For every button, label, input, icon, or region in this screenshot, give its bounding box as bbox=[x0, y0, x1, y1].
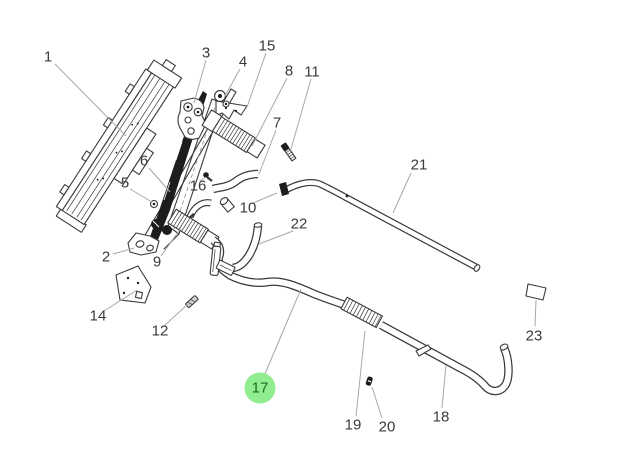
leader-line-11 bbox=[291, 79, 311, 149]
part-label-15[interactable]: 15 bbox=[259, 38, 276, 55]
part-23-pad bbox=[526, 284, 546, 300]
leader-line-8 bbox=[252, 78, 287, 146]
leader-line-20 bbox=[372, 387, 382, 418]
part-label-18[interactable]: 18 bbox=[433, 409, 450, 426]
part-label-2[interactable]: 2 bbox=[102, 249, 110, 266]
leader-line-19 bbox=[356, 331, 365, 416]
part-label-10[interactable]: 10 bbox=[240, 200, 257, 217]
part-10-sleeve bbox=[219, 196, 234, 212]
part-label-14[interactable]: 14 bbox=[90, 308, 107, 325]
part-label-6[interactable]: 6 bbox=[140, 153, 148, 170]
part-11-bolt bbox=[280, 142, 296, 161]
leader-line-18 bbox=[442, 365, 446, 408]
part-label-19[interactable]: 19 bbox=[345, 417, 362, 434]
leader-line-22 bbox=[259, 231, 293, 244]
part-label-7[interactable]: 7 bbox=[273, 115, 281, 132]
part-3-bracket bbox=[178, 98, 205, 139]
exploded-parts-diagram: 12345678910111214151617181920212223 bbox=[0, 0, 618, 468]
part-label-22[interactable]: 22 bbox=[291, 216, 308, 233]
leader-line-17 bbox=[264, 289, 301, 376]
part-14-plate bbox=[116, 266, 151, 303]
leader-line-5 bbox=[130, 189, 152, 202]
part-7-hose bbox=[213, 174, 258, 189]
part-label-3[interactable]: 3 bbox=[202, 45, 210, 62]
part-21-pipe bbox=[279, 182, 481, 272]
part-22-pipe bbox=[233, 222, 262, 268]
part-label-17[interactable]: 17 bbox=[252, 380, 269, 397]
leader-line-7 bbox=[259, 130, 276, 174]
part-label-12[interactable]: 12 bbox=[152, 323, 169, 340]
leader-line-1 bbox=[55, 64, 126, 136]
part-label-4[interactable]: 4 bbox=[239, 54, 247, 71]
pipe-stub bbox=[216, 260, 235, 276]
part-label-21[interactable]: 21 bbox=[411, 157, 428, 174]
part-label-8[interactable]: 8 bbox=[285, 63, 293, 80]
leader-line-21 bbox=[393, 173, 411, 213]
leader-line-4 bbox=[225, 69, 240, 96]
part-19-corrugated-section bbox=[341, 297, 382, 327]
part-label-20[interactable]: 20 bbox=[379, 419, 396, 436]
part-20-clip bbox=[365, 376, 373, 386]
leader-line-6 bbox=[149, 168, 170, 192]
leader-line-23 bbox=[535, 300, 536, 326]
leader-line-10 bbox=[253, 193, 277, 203]
diagram-canvas: 12345678910111214151617181920212223 bbox=[0, 0, 618, 468]
part-label-1[interactable]: 1 bbox=[44, 49, 52, 66]
part-12-pin bbox=[185, 295, 198, 308]
part-label-23[interactable]: 23 bbox=[526, 328, 543, 345]
leader-line-15 bbox=[247, 53, 266, 107]
part-17-pipe bbox=[229, 275, 353, 308]
part-label-5[interactable]: 5 bbox=[121, 175, 129, 192]
part-label-11[interactable]: 11 bbox=[304, 64, 320, 81]
part-label-16[interactable]: 16 bbox=[190, 178, 207, 195]
part-label-9[interactable]: 9 bbox=[153, 254, 161, 271]
